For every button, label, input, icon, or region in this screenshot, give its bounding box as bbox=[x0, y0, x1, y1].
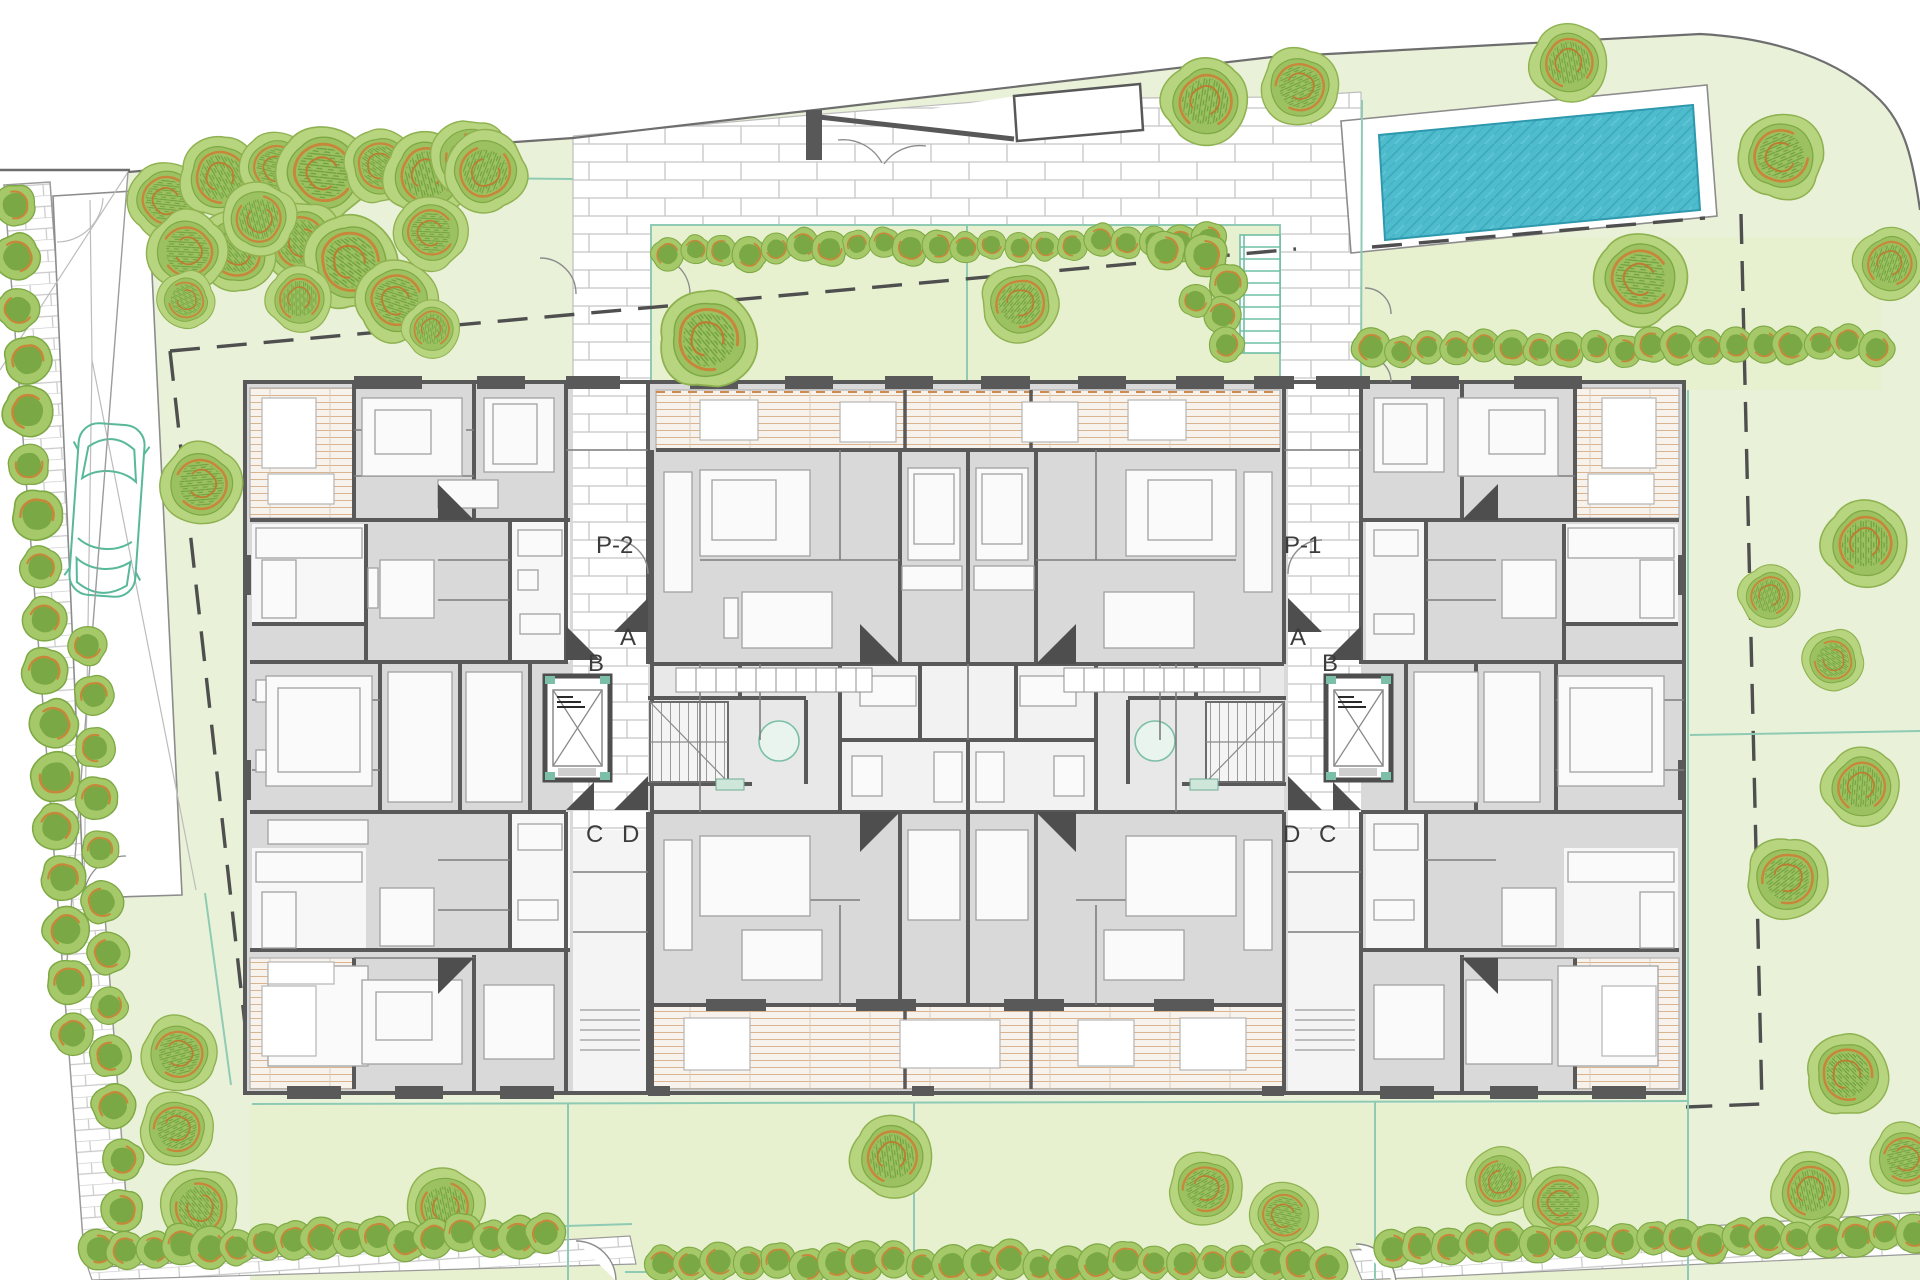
svg-text:C: C bbox=[586, 821, 603, 848]
svg-text:B: B bbox=[1322, 650, 1338, 677]
svg-text:D: D bbox=[622, 821, 639, 848]
svg-text:A: A bbox=[1290, 624, 1306, 651]
svg-text:C: C bbox=[1319, 821, 1336, 848]
svg-text:D: D bbox=[1283, 821, 1300, 848]
svg-text:P-2: P-2 bbox=[596, 532, 633, 559]
svg-text:P-1: P-1 bbox=[1284, 532, 1321, 559]
svg-text:A: A bbox=[620, 624, 636, 651]
svg-text:B: B bbox=[588, 650, 604, 677]
